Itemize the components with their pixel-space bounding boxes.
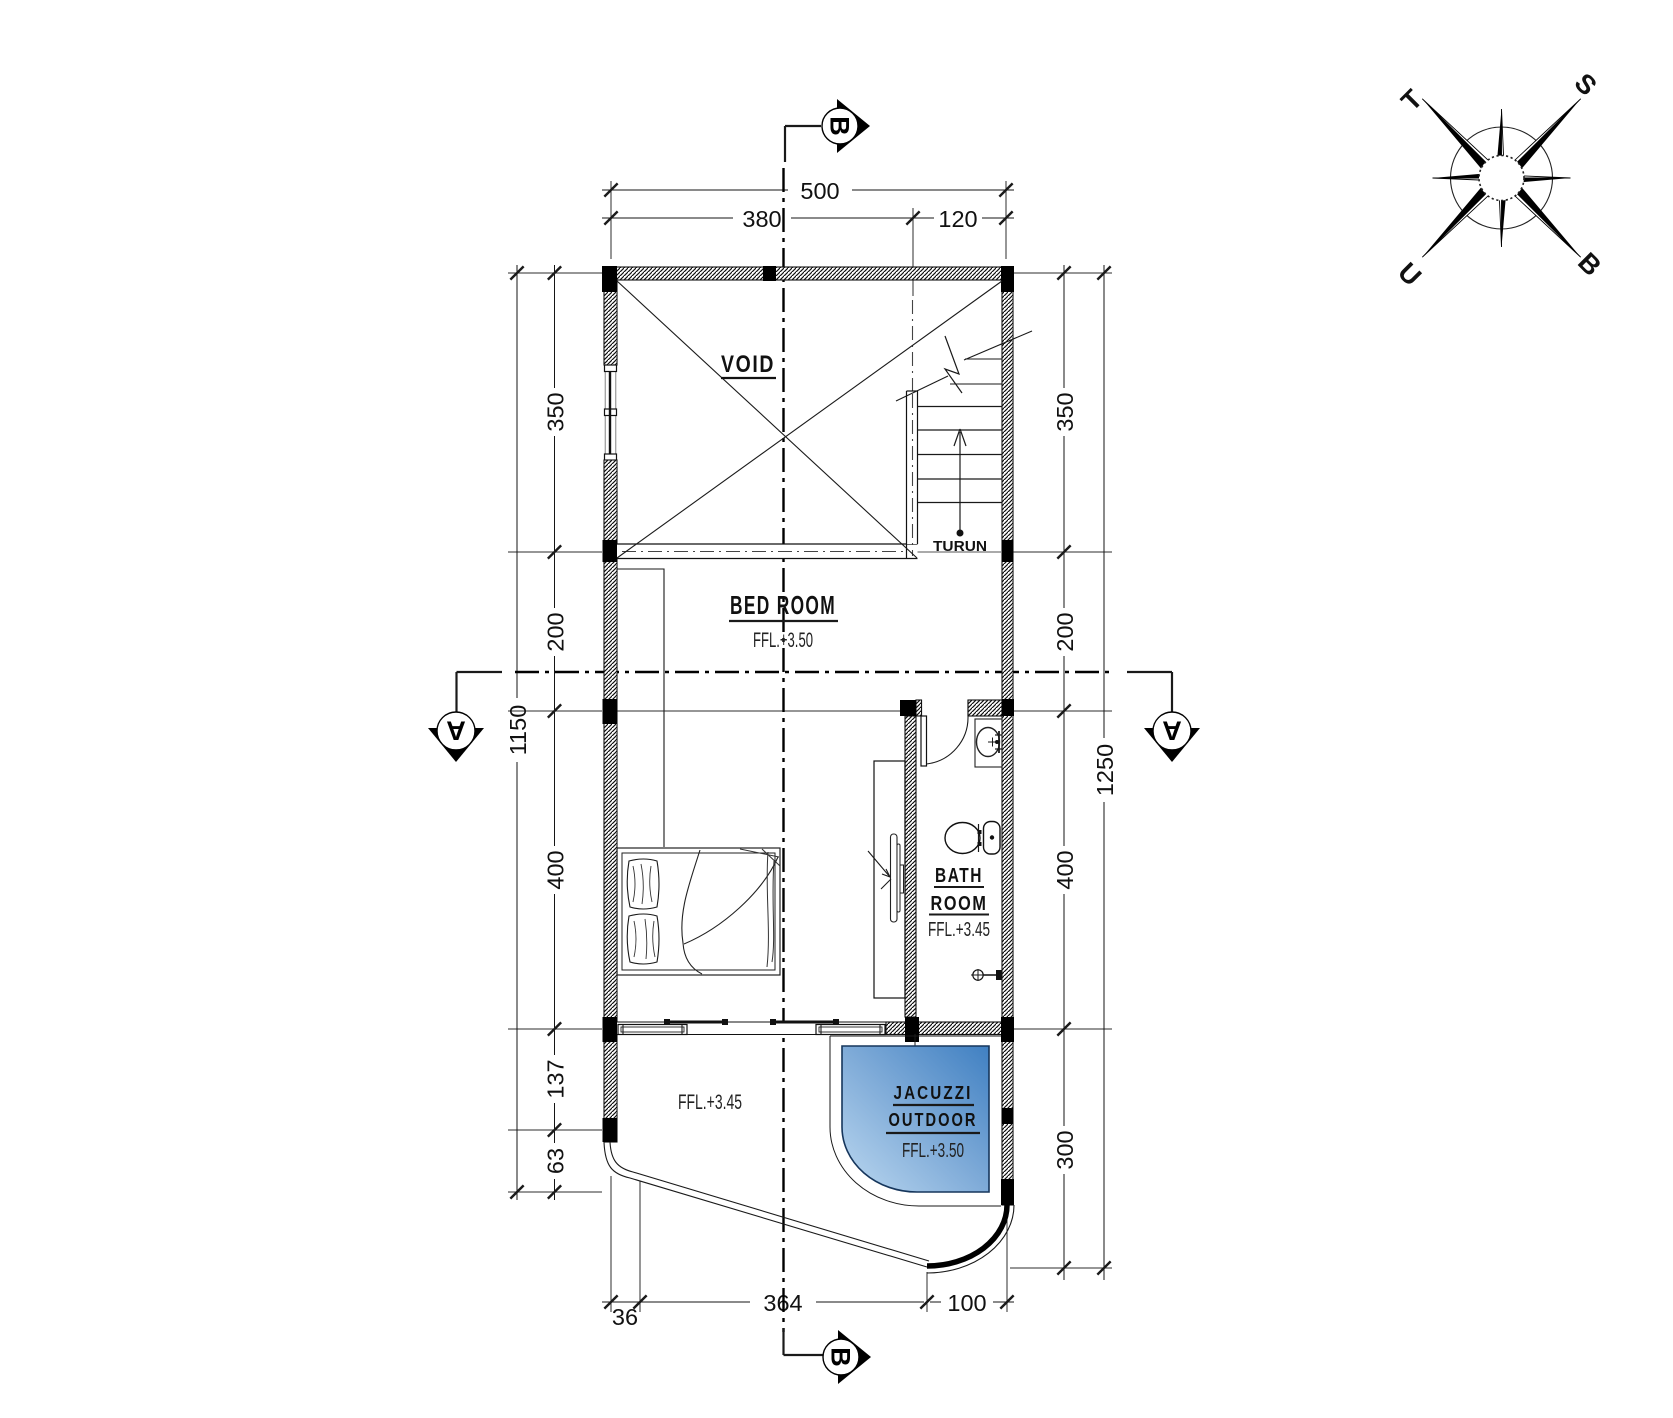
svg-text:400: 400	[543, 850, 569, 889]
svg-text:ROOM: ROOM	[931, 893, 988, 915]
svg-text:380: 380	[742, 206, 781, 232]
svg-text:1250: 1250	[1092, 744, 1118, 796]
svg-text:FFL.+3.50: FFL.+3.50	[753, 629, 813, 652]
svg-text:300: 300	[1052, 1130, 1078, 1169]
svg-text:200: 200	[1052, 612, 1078, 651]
svg-text:A: A	[1162, 716, 1182, 746]
svg-text:B: B	[826, 1347, 856, 1367]
svg-text:500: 500	[800, 178, 839, 204]
svg-text:BED ROOM: BED ROOM	[730, 590, 836, 620]
svg-text:TURUN: TURUN	[933, 538, 987, 555]
svg-text:120: 120	[938, 206, 977, 232]
svg-text:400: 400	[1052, 850, 1078, 889]
svg-text:137: 137	[543, 1059, 569, 1098]
svg-text:63: 63	[543, 1148, 569, 1174]
svg-text:350: 350	[1052, 392, 1078, 431]
svg-text:FFL.+3.50: FFL.+3.50	[902, 1140, 964, 1162]
svg-text:36: 36	[612, 1304, 638, 1330]
svg-text:FFL.+3.45: FFL.+3.45	[928, 919, 990, 941]
svg-text:1150: 1150	[505, 705, 531, 756]
svg-text:BATH: BATH	[935, 865, 983, 887]
svg-text:JACUZZI: JACUZZI	[894, 1083, 973, 1103]
svg-text:A: A	[446, 716, 466, 746]
svg-text:200: 200	[543, 612, 569, 651]
svg-text:FFL.+3.45: FFL.+3.45	[678, 1091, 742, 1114]
svg-text:100: 100	[947, 1290, 986, 1316]
svg-text:350: 350	[543, 392, 569, 431]
svg-text:B: B	[825, 116, 855, 136]
svg-text:OUTDOOR: OUTDOOR	[889, 1110, 978, 1130]
svg-text:VOID: VOID	[721, 351, 775, 378]
